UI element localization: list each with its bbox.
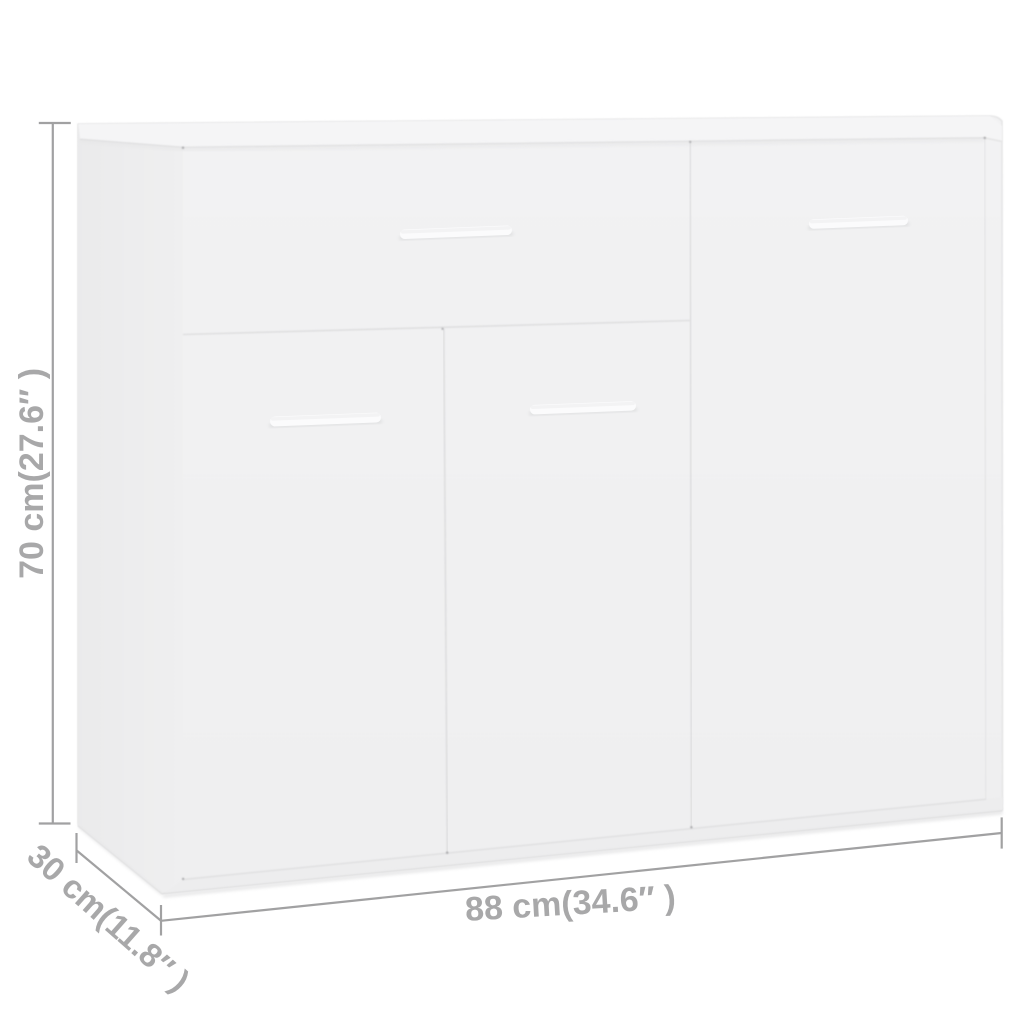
svg-text:70 cm(27.6″ ): 70 cm(27.6″ ) [13,368,51,579]
